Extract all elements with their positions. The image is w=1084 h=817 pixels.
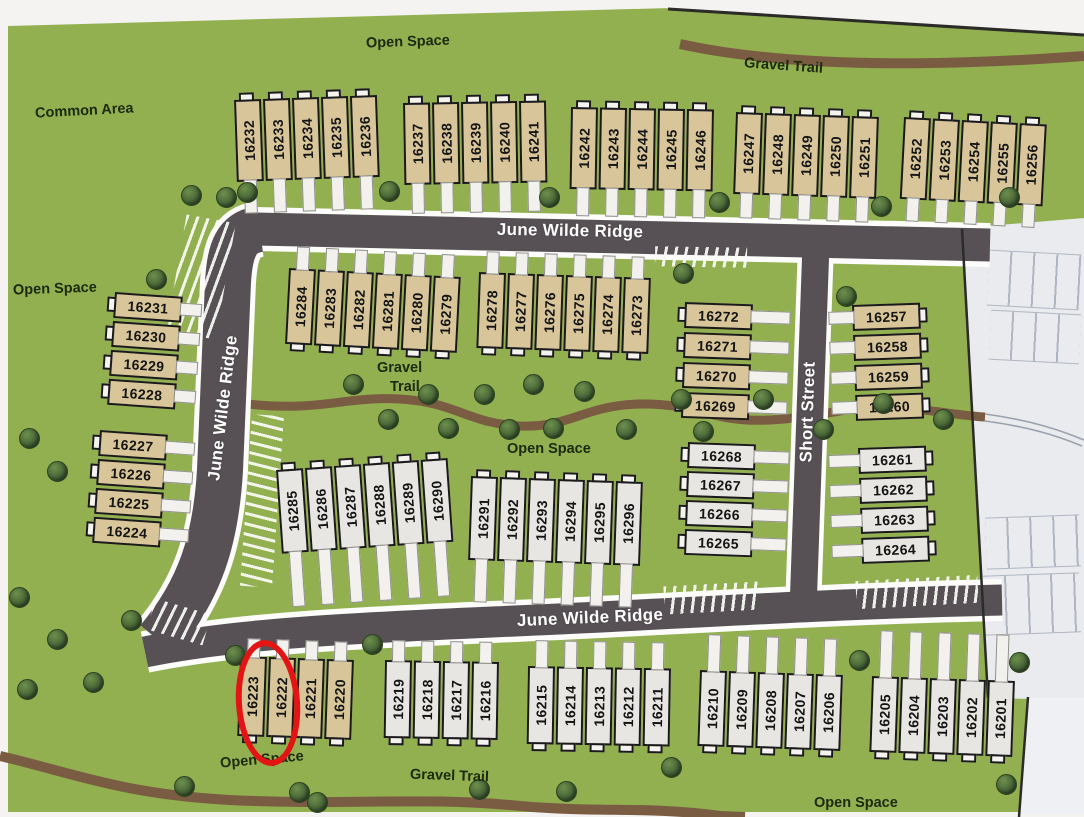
lot-16238: 16238: [432, 102, 460, 184]
lot-16251: 16251: [849, 116, 879, 199]
lot-16209: 16209: [726, 671, 756, 748]
driveway: [532, 560, 547, 604]
porch-pad: [920, 367, 930, 382]
lot-number: 16202: [962, 697, 979, 738]
lot-16272: 16272: [684, 302, 753, 330]
lot-number: 16296: [619, 503, 636, 544]
porch-pad: [677, 307, 687, 322]
lot-16241: 16241: [519, 101, 547, 183]
driveway: [828, 311, 854, 325]
porch-pad: [990, 754, 1005, 764]
driveway: [486, 251, 500, 274]
driveway: [383, 251, 397, 276]
driveway: [360, 175, 374, 209]
lot-number: 16229: [123, 356, 165, 375]
lot-16213: 16213: [585, 667, 613, 745]
porch-pad: [626, 351, 641, 361]
lot-16296: 16296: [613, 481, 643, 566]
lot-16287: 16287: [334, 464, 367, 550]
lot-number: 16262: [873, 481, 914, 498]
lot-16236: 16236: [350, 95, 380, 178]
porch-pad: [592, 473, 607, 483]
porch-pad: [539, 348, 554, 358]
tree-icon: [9, 587, 30, 608]
tree-icon: [121, 610, 142, 631]
lot-16219: 16219: [384, 660, 412, 738]
lot-16256: 16256: [1016, 123, 1047, 206]
driveway: [450, 641, 463, 663]
lot-number: 16246: [691, 130, 708, 171]
lot-number: 16203: [933, 696, 950, 737]
lot-16252: 16252: [900, 117, 931, 200]
tree-icon: [539, 187, 560, 208]
driveway: [622, 642, 635, 670]
porch-pad: [367, 456, 383, 466]
porch-pad: [919, 337, 929, 352]
lot-number: 16201: [991, 698, 1008, 739]
porch-pad: [86, 521, 96, 537]
porch-pad: [679, 476, 689, 491]
tree-icon: [616, 419, 637, 440]
porch-pad: [107, 296, 117, 312]
driveway: [651, 642, 664, 670]
porch-pad: [329, 737, 344, 747]
lot-16289: 16289: [392, 460, 425, 546]
lot-number: 16220: [330, 679, 347, 720]
lot-number: 16275: [569, 293, 586, 334]
lot-number: 16238: [438, 123, 455, 164]
porch-pad: [903, 751, 918, 761]
lot-16291: 16291: [468, 476, 498, 561]
driveway: [995, 634, 1010, 682]
driveway: [158, 527, 189, 542]
area-label: Open Space: [814, 795, 898, 811]
driveway: [765, 636, 779, 674]
lot-16201: 16201: [985, 680, 1015, 757]
porch-pad: [476, 469, 491, 479]
lot-16244: 16244: [628, 108, 656, 190]
lot-16225: 16225: [94, 488, 164, 519]
driveway: [831, 544, 863, 558]
driveway: [619, 563, 634, 607]
porch-pad: [389, 736, 404, 745]
porch-pad: [818, 748, 833, 758]
lot-16295: 16295: [584, 480, 614, 565]
tree-icon: [693, 421, 714, 442]
lot-number: 16233: [269, 119, 286, 160]
lot-number: 16228: [121, 385, 163, 404]
lot-16281: 16281: [372, 273, 403, 350]
lot-16267: 16267: [686, 471, 755, 499]
driveway: [823, 638, 837, 676]
lot-number: 16264: [875, 541, 916, 558]
driveway: [750, 310, 790, 324]
driveway: [412, 252, 426, 277]
porch-pad: [309, 460, 325, 470]
tree-icon: [849, 650, 870, 671]
lot-number: 16290: [428, 480, 447, 522]
tree-icon: [709, 192, 730, 213]
lot-number: 16254: [964, 141, 982, 183]
tree-icon: [174, 776, 195, 797]
lot-16248: 16248: [762, 113, 792, 196]
lot-number: 16270: [696, 367, 737, 384]
porch-pad: [563, 472, 578, 482]
tree-icon: [19, 428, 40, 449]
tree-icon: [543, 418, 564, 439]
driveway: [173, 389, 196, 404]
driveway: [469, 182, 483, 213]
lot-16211: 16211: [643, 668, 671, 746]
driveway: [692, 189, 706, 218]
lot-16253: 16253: [929, 119, 960, 202]
lot-number: 16284: [291, 286, 309, 328]
driveway: [165, 441, 196, 456]
driveway: [908, 631, 923, 679]
tree-icon: [47, 629, 68, 650]
driveway: [177, 332, 200, 347]
porch-pad: [678, 505, 688, 520]
lot-16202: 16202: [956, 679, 986, 756]
porch-pad: [297, 90, 312, 100]
lot-16226: 16226: [96, 459, 166, 490]
lot-16264: 16264: [861, 536, 930, 564]
porch-pad: [961, 753, 976, 763]
parking-stripes: [663, 582, 760, 615]
lot-16290: 16290: [421, 458, 454, 544]
lot-number: 16224: [106, 523, 148, 542]
lot-16232: 16232: [234, 99, 264, 182]
lot-number: 16279: [436, 293, 454, 335]
tree-icon: [873, 393, 894, 414]
lot-16278: 16278: [476, 272, 506, 349]
porch-pad: [280, 462, 296, 472]
tree-icon: [418, 384, 439, 405]
tree-icon: [1009, 652, 1030, 673]
driveway: [180, 303, 203, 318]
lot-number: 16276: [540, 292, 557, 333]
lot-number: 16218: [418, 679, 435, 720]
porch-pad: [741, 105, 756, 115]
porch-pad: [938, 112, 953, 122]
lot-number: 16211: [648, 687, 665, 727]
lot-16227: 16227: [98, 430, 168, 461]
porch-pad: [677, 534, 687, 549]
lot-16282: 16282: [343, 271, 374, 348]
area-label: Gravel Trail: [410, 767, 490, 786]
tree-icon: [83, 672, 104, 693]
porch-pad: [355, 88, 370, 98]
lot-16208: 16208: [755, 672, 785, 749]
tree-icon: [836, 286, 857, 307]
lot-number: 16206: [819, 692, 836, 733]
lot-number: 16234: [298, 118, 315, 159]
porch-pad: [918, 307, 928, 322]
porch-pad: [348, 345, 363, 355]
lot-16250: 16250: [820, 115, 850, 198]
lot-number: 16239: [467, 122, 484, 163]
site-plan-photo: 1623216233162341623516236162371623816239…: [0, 0, 1084, 817]
lot-16247: 16247: [733, 112, 763, 195]
lot-16285: 16285: [276, 468, 309, 554]
porch-pad: [692, 102, 707, 111]
lot-number: 16209: [732, 689, 749, 730]
lot-number: 16285: [283, 490, 302, 532]
lot-number: 16289: [399, 482, 418, 524]
lot-16262: 16262: [859, 476, 928, 504]
driveway: [966, 633, 981, 681]
lot-number: 16225: [108, 494, 150, 513]
driveway: [631, 256, 645, 279]
lot-16288: 16288: [363, 462, 396, 548]
lot-number: 16280: [407, 292, 425, 334]
driveway: [503, 559, 518, 603]
tree-icon: [181, 185, 202, 206]
porch-pad: [92, 434, 102, 450]
tree-icon: [523, 374, 544, 395]
driveway: [830, 514, 862, 528]
lot-16261: 16261: [858, 446, 927, 474]
porch-pad: [268, 91, 283, 101]
tree-icon: [999, 187, 1020, 208]
porch-pad: [605, 101, 620, 110]
porch-pad: [909, 110, 924, 120]
porch-pad: [576, 100, 591, 109]
lot-number: 16247: [739, 133, 756, 174]
lot-number: 16241: [525, 121, 542, 162]
driveway: [334, 641, 348, 661]
lot-16220: 16220: [324, 659, 354, 740]
driveway: [1021, 203, 1035, 228]
lot-16286: 16286: [305, 466, 338, 552]
porch-pad: [447, 737, 462, 746]
lot-number: 16219: [389, 679, 406, 720]
driveway: [830, 371, 856, 385]
lot-16246: 16246: [686, 109, 714, 191]
lot-16293: 16293: [526, 478, 556, 563]
lot-number: 16291: [474, 498, 491, 539]
lot-16283: 16283: [314, 270, 345, 347]
porch-pad: [408, 96, 423, 105]
lot-16245: 16245: [657, 109, 685, 191]
driveway: [302, 177, 316, 211]
driveway: [325, 248, 339, 273]
driveway: [707, 634, 721, 672]
lot-16237: 16237: [403, 103, 431, 185]
lot-number: 16205: [875, 694, 892, 735]
porch-pad: [924, 450, 934, 465]
tree-icon: [47, 461, 68, 482]
porch-pad: [434, 350, 449, 360]
tree-icon: [307, 792, 328, 813]
tree-icon: [671, 389, 692, 410]
lot-16214: 16214: [556, 667, 584, 745]
lot-16203: 16203: [927, 678, 957, 755]
driveway: [748, 370, 788, 384]
lot-16280: 16280: [401, 274, 432, 351]
area-label: Open Space: [13, 280, 97, 299]
driveway: [794, 637, 808, 675]
porch-pad: [418, 737, 433, 746]
porch-pad: [532, 742, 547, 751]
lot-16240: 16240: [490, 101, 518, 183]
porch-pad: [932, 752, 947, 762]
lot-number: 16295: [590, 502, 607, 543]
lot-number: 16243: [604, 128, 621, 169]
lot-16206: 16206: [813, 674, 843, 751]
lot-16274: 16274: [592, 276, 622, 353]
lot-number: 16265: [698, 534, 739, 551]
driveway: [162, 470, 193, 485]
lot-16275: 16275: [563, 275, 593, 352]
lot-number: 16250: [826, 136, 843, 177]
tree-icon: [661, 757, 682, 778]
lot-number: 16208: [761, 690, 778, 731]
lot-number: 16281: [378, 290, 396, 332]
porch-pad: [857, 109, 872, 119]
driveway: [828, 454, 860, 468]
lot-number: 16214: [561, 685, 578, 726]
porch-pad: [290, 342, 305, 352]
porch-pad: [568, 349, 583, 359]
porch-pad: [676, 337, 686, 352]
porch-pad: [770, 106, 785, 116]
tree-icon: [753, 389, 774, 410]
parking-stripes: [655, 246, 747, 268]
driveway: [768, 193, 782, 219]
lot-number: 16251: [855, 137, 872, 178]
lot-number: 16221: [301, 678, 318, 719]
driveway: [354, 249, 368, 274]
driveway: [739, 192, 753, 218]
driveway: [663, 189, 677, 218]
lot-16230: 16230: [111, 321, 181, 352]
porch-pad: [90, 463, 100, 479]
lot-number: 16293: [532, 500, 549, 541]
lot-16217: 16217: [442, 661, 470, 739]
porch-pad: [1025, 116, 1040, 126]
lot-number: 16217: [447, 680, 464, 721]
plat-boundary-right: [962, 229, 988, 698]
driveway: [750, 537, 786, 551]
lot-number: 16253: [935, 139, 953, 181]
porch-pad: [437, 95, 452, 104]
driveway: [602, 255, 616, 278]
porch-pad: [476, 738, 491, 747]
driveway: [273, 178, 287, 212]
tree-icon: [438, 418, 459, 439]
lot-number: 16273: [627, 295, 644, 336]
lot-16216: 16216: [471, 662, 499, 740]
plat-boundary-corner: [1019, 697, 1028, 817]
driveway: [421, 641, 434, 663]
driveway: [474, 558, 489, 602]
driveway: [935, 199, 949, 224]
porch-pad: [926, 510, 936, 525]
porch-pad: [326, 89, 341, 99]
lot-16242: 16242: [570, 107, 598, 189]
lot-number: 16278: [482, 290, 499, 331]
lot-16277: 16277: [505, 273, 535, 350]
porch-pad: [425, 452, 441, 462]
driveway: [826, 195, 840, 221]
tree-icon: [343, 374, 364, 395]
lot-16270: 16270: [682, 362, 751, 390]
driveway: [535, 640, 548, 668]
tree-icon: [871, 196, 892, 217]
porch-pad: [510, 347, 525, 357]
driveway: [829, 341, 855, 355]
porch-pad: [338, 458, 354, 468]
driveway: [593, 641, 606, 669]
driveway: [479, 642, 492, 664]
lot-16268: 16268: [687, 442, 756, 470]
tree-icon: [499, 419, 520, 440]
porch-pad: [925, 480, 935, 495]
porch-pad: [874, 750, 889, 760]
lot-number: 16258: [867, 338, 908, 355]
driveway: [855, 196, 869, 222]
lot-number: 16215: [532, 685, 549, 726]
porch-pad: [505, 470, 520, 480]
porch-pad: [561, 743, 576, 752]
tree-icon: [574, 381, 595, 402]
porch-pad: [921, 397, 931, 412]
lot-number: 16255: [993, 142, 1011, 184]
driveway: [590, 562, 605, 606]
lot-number: 16283: [320, 287, 338, 329]
lot-number: 16226: [110, 465, 152, 484]
driveway: [753, 450, 789, 464]
lot-number: 16227: [112, 436, 154, 455]
lot-16259: 16259: [854, 363, 923, 391]
lot-16276: 16276: [534, 274, 564, 351]
lot-number: 16216: [476, 680, 493, 721]
lot-16279: 16279: [430, 276, 461, 353]
lot-16233: 16233: [263, 98, 293, 181]
lot-number: 16292: [503, 499, 520, 540]
lot-number: 16232: [240, 120, 257, 161]
porch-pad: [101, 383, 111, 399]
driveway: [736, 635, 750, 673]
lot-number: 16263: [874, 511, 915, 528]
porch-pad: [590, 743, 605, 752]
gravel-trail-future: [985, 414, 1084, 446]
lot-number: 16252: [906, 138, 924, 180]
driveway: [879, 630, 894, 678]
tree-icon: [474, 384, 495, 405]
porch-pad: [466, 95, 481, 104]
porch-pad: [996, 115, 1011, 125]
porch-pad: [828, 108, 843, 118]
lot-16218: 16218: [413, 661, 441, 739]
area-label: Trail: [390, 379, 420, 395]
lot-number: 16267: [700, 476, 741, 493]
driveway: [411, 183, 425, 214]
driveway: [564, 641, 577, 669]
lot-16207: 16207: [784, 673, 814, 750]
porch-pad: [103, 354, 113, 370]
lot-number: 16248: [768, 134, 785, 175]
lot-number: 16236: [356, 116, 373, 157]
porch-pad: [927, 540, 937, 555]
porch-pad: [495, 94, 510, 103]
porch-pad: [634, 101, 649, 110]
lot-number: 16269: [695, 397, 736, 414]
lot-number: 16268: [701, 447, 742, 464]
driveway: [605, 188, 619, 217]
lot-number: 16207: [790, 691, 807, 732]
